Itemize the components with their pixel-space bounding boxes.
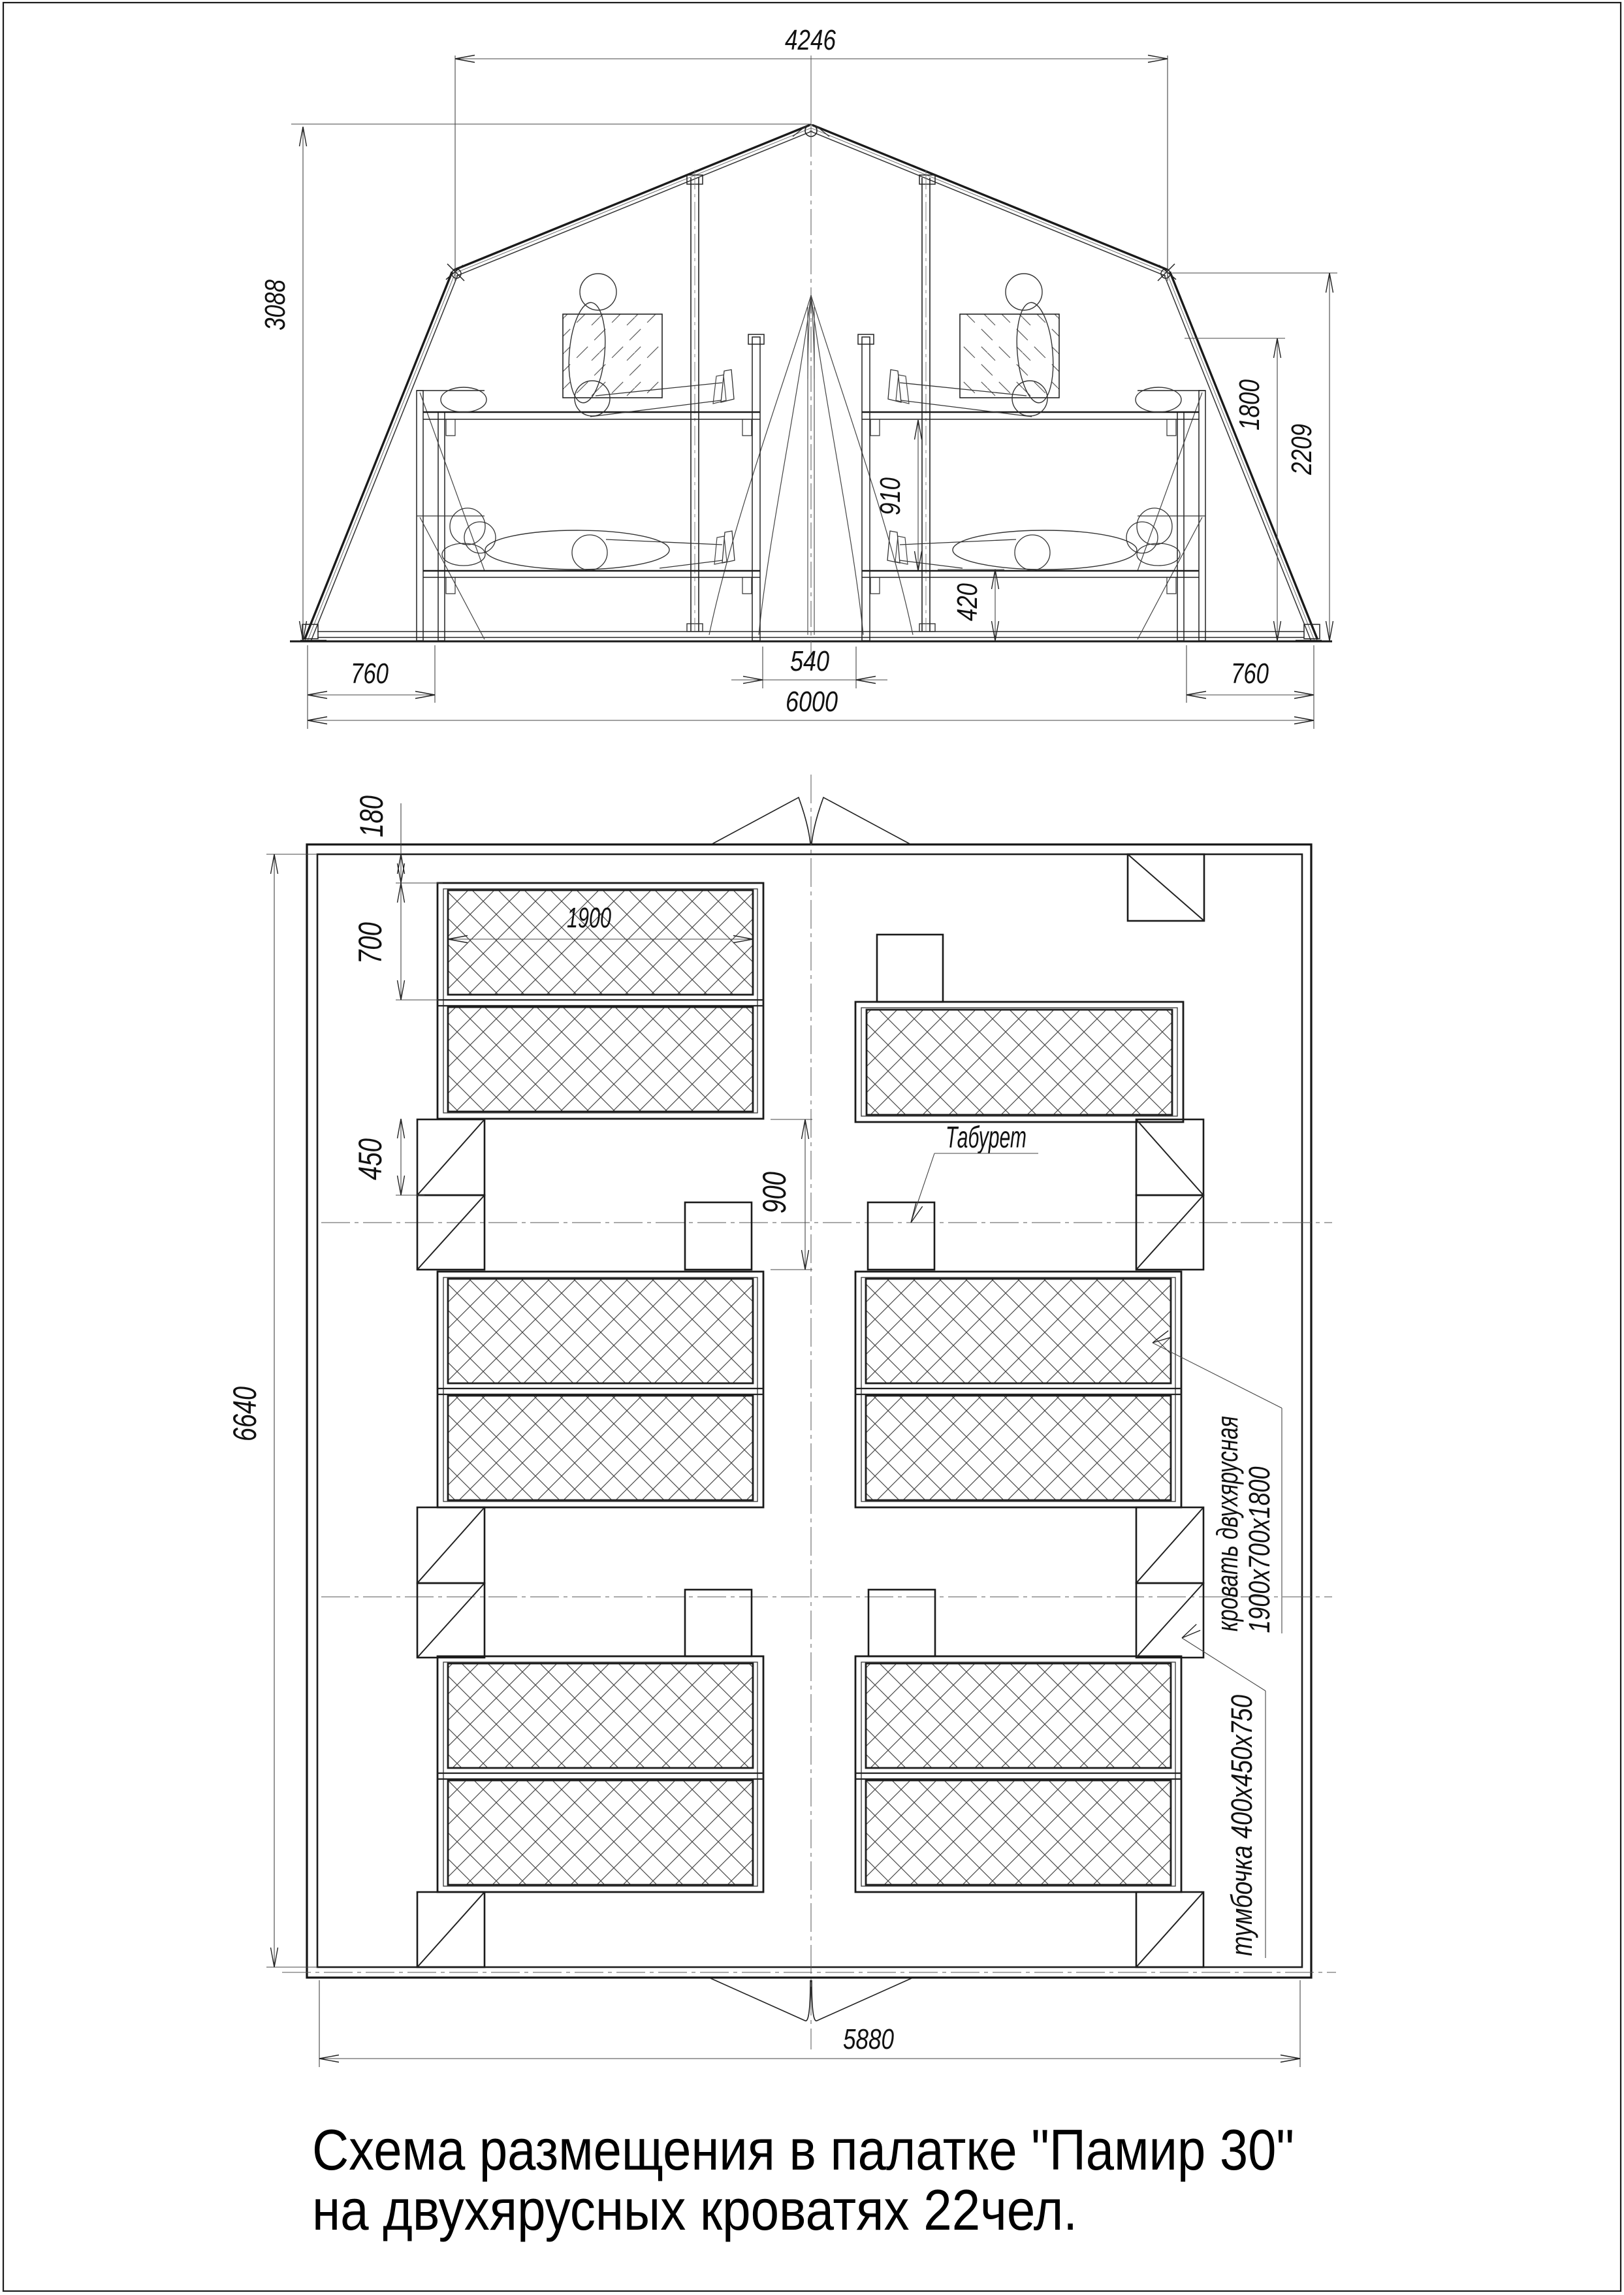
- svg-text:1900х700х1800: 1900х700х1800: [1243, 1467, 1276, 1633]
- svg-text:180: 180: [353, 795, 390, 837]
- svg-text:6000: 6000: [786, 686, 838, 718]
- svg-text:910: 910: [874, 477, 906, 515]
- svg-text:1900: 1900: [567, 902, 611, 934]
- svg-text:4246: 4246: [785, 24, 836, 56]
- svg-text:Табурет: Табурет: [946, 1120, 1027, 1154]
- svg-text:Схема размещения в палатке "Па: Схема размещения в палатке "Памир 30": [312, 2117, 1294, 2182]
- svg-text:450: 450: [352, 1138, 389, 1180]
- svg-text:2209: 2209: [1286, 424, 1318, 475]
- svg-text:540: 540: [790, 645, 829, 677]
- svg-text:6640: 6640: [227, 1387, 263, 1441]
- svg-text:3088: 3088: [259, 280, 291, 330]
- svg-text:760: 760: [351, 658, 389, 690]
- svg-text:тумбочка 400х450х750: тумбочка 400х450х750: [1225, 1695, 1258, 1956]
- svg-text:5880: 5880: [843, 2023, 894, 2055]
- svg-text:на двухярусных кроватях 22чел.: на двухярусных кроватях 22чел.: [312, 2177, 1077, 2242]
- svg-text:900: 900: [756, 1172, 793, 1213]
- svg-text:420: 420: [951, 583, 983, 621]
- svg-text:кровать двухярусная: кровать двухярусная: [1211, 1416, 1244, 1631]
- svg-text:1800: 1800: [1234, 379, 1266, 430]
- svg-text:700: 700: [352, 922, 389, 964]
- svg-text:760: 760: [1231, 658, 1269, 690]
